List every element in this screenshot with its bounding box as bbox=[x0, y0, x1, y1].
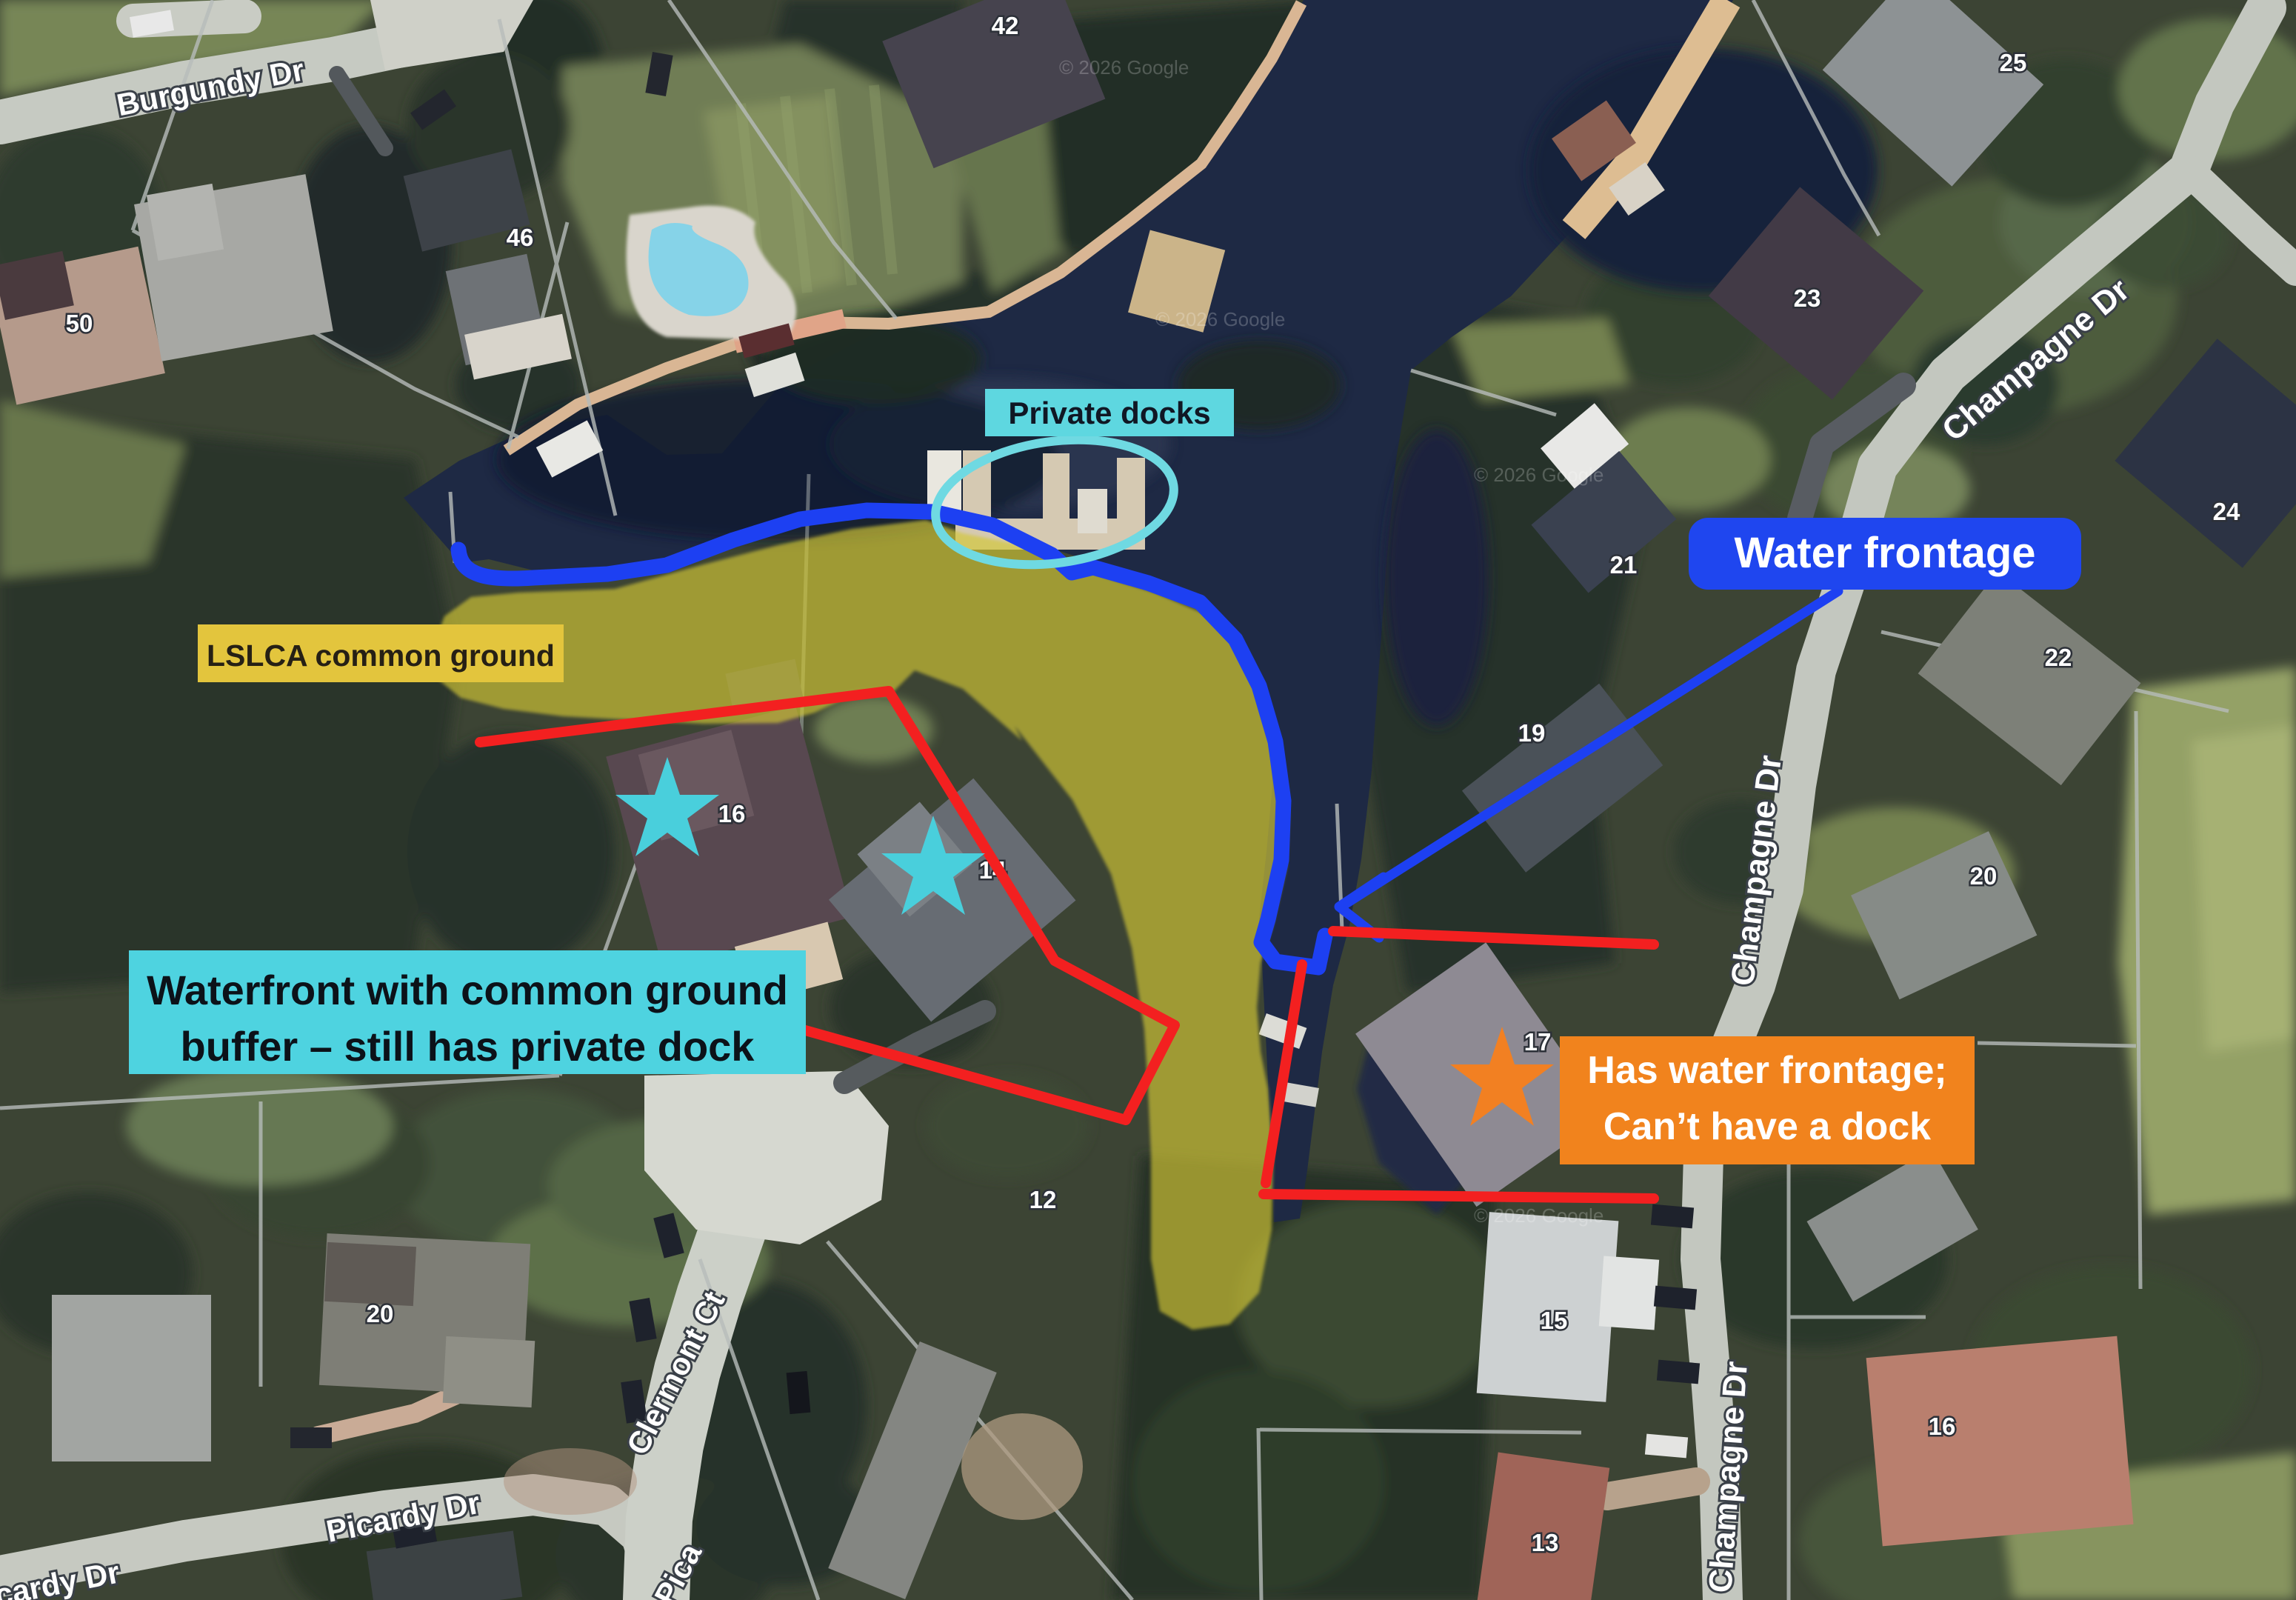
svg-text:17: 17 bbox=[1524, 1028, 1552, 1056]
svg-text:25: 25 bbox=[2000, 49, 2027, 76]
svg-text:© 2026 Google: © 2026 Google bbox=[1059, 56, 1189, 79]
svg-text:50: 50 bbox=[66, 310, 93, 337]
svg-text:46: 46 bbox=[507, 224, 534, 251]
svg-text:20: 20 bbox=[367, 1300, 394, 1327]
svg-text:LSLCA common ground: LSLCA common ground bbox=[207, 639, 555, 673]
svg-text:12: 12 bbox=[1029, 1186, 1057, 1213]
svg-text:24: 24 bbox=[2213, 498, 2240, 525]
svg-text:© 2026 Google: © 2026 Google bbox=[1155, 308, 1285, 330]
svg-text:Water frontage: Water frontage bbox=[1734, 529, 2035, 577]
svg-text:© 2026 Google: © 2026 Google bbox=[1474, 464, 1603, 486]
svg-text:19: 19 bbox=[1518, 719, 1546, 747]
svg-text:15: 15 bbox=[1541, 1307, 1568, 1334]
svg-text:13: 13 bbox=[1532, 1529, 1559, 1556]
svg-text:16: 16 bbox=[718, 800, 746, 827]
svg-text:Waterfront with common ground: Waterfront with common ground bbox=[147, 967, 788, 1013]
svg-text:21: 21 bbox=[1610, 551, 1638, 579]
svg-text:16: 16 bbox=[1929, 1413, 1956, 1440]
svg-text:Has water frontage;: Has water frontage; bbox=[1587, 1049, 1946, 1092]
svg-text:42: 42 bbox=[992, 12, 1019, 39]
svg-text:20: 20 bbox=[1970, 862, 1998, 890]
svg-text:buffer – still has private doc: buffer – still has private dock bbox=[181, 1023, 755, 1070]
svg-text:Private docks: Private docks bbox=[1008, 396, 1210, 430]
svg-text:23: 23 bbox=[1794, 284, 1821, 312]
svg-text:22: 22 bbox=[2045, 644, 2072, 671]
svg-text:© 2026 Google: © 2026 Google bbox=[1474, 1204, 1603, 1227]
svg-text:Can’t have a dock: Can’t have a dock bbox=[1603, 1105, 1931, 1148]
